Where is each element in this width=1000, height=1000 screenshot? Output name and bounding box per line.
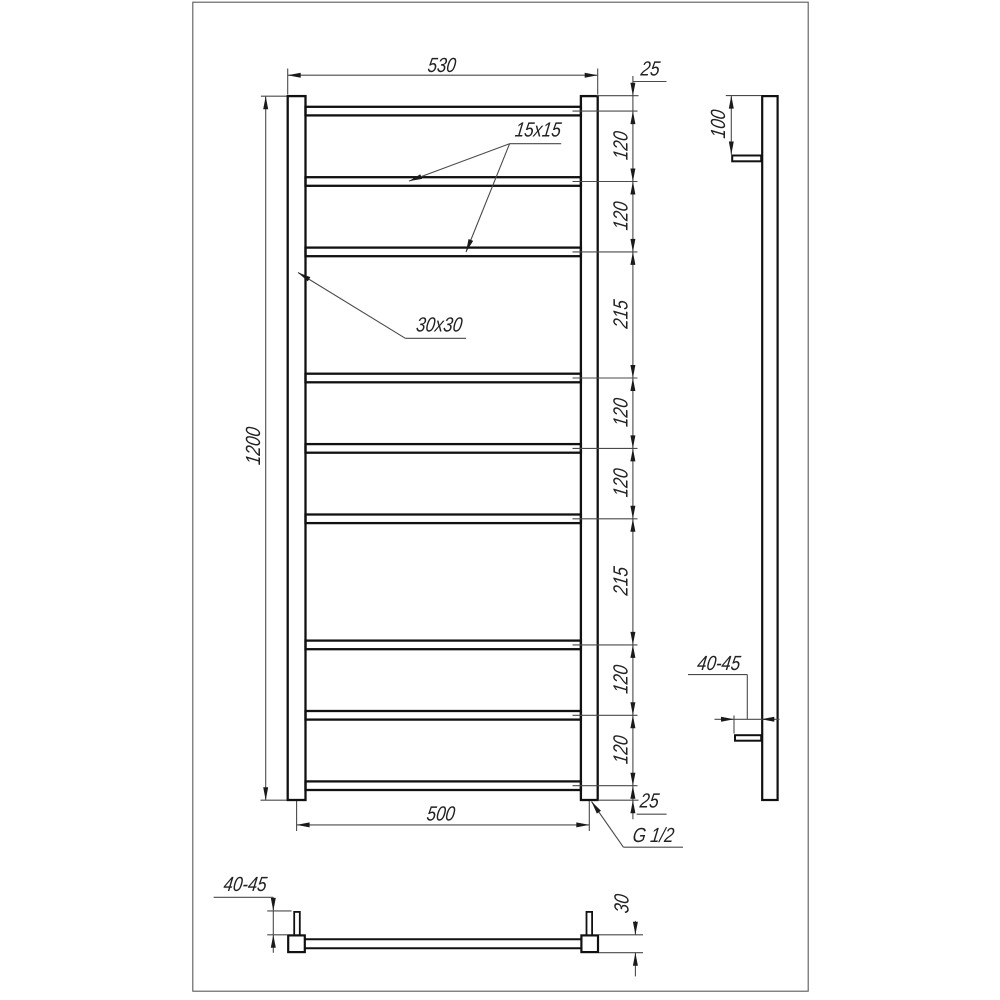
svg-text:1200: 1200 — [242, 425, 265, 466]
svg-text:120: 120 — [609, 663, 632, 695]
svg-text:530: 530 — [426, 54, 458, 77]
svg-text:100: 100 — [706, 108, 729, 140]
svg-text:120: 120 — [609, 129, 632, 161]
svg-text:25: 25 — [639, 57, 662, 80]
svg-text:40-45: 40-45 — [696, 652, 743, 675]
svg-text:15x15: 15x15 — [514, 118, 563, 141]
svg-text:G 1/2: G 1/2 — [631, 824, 676, 847]
svg-text:25: 25 — [638, 789, 661, 812]
svg-text:120: 120 — [609, 733, 632, 765]
svg-text:120: 120 — [609, 396, 632, 428]
svg-text:30: 30 — [610, 892, 633, 914]
svg-text:30x30: 30x30 — [415, 313, 464, 336]
svg-text:500: 500 — [425, 802, 457, 825]
svg-text:215: 215 — [609, 565, 632, 598]
svg-text:40-45: 40-45 — [222, 873, 269, 896]
svg-text:120: 120 — [609, 200, 632, 232]
svg-text:120: 120 — [609, 467, 632, 499]
svg-text:215: 215 — [609, 298, 632, 331]
